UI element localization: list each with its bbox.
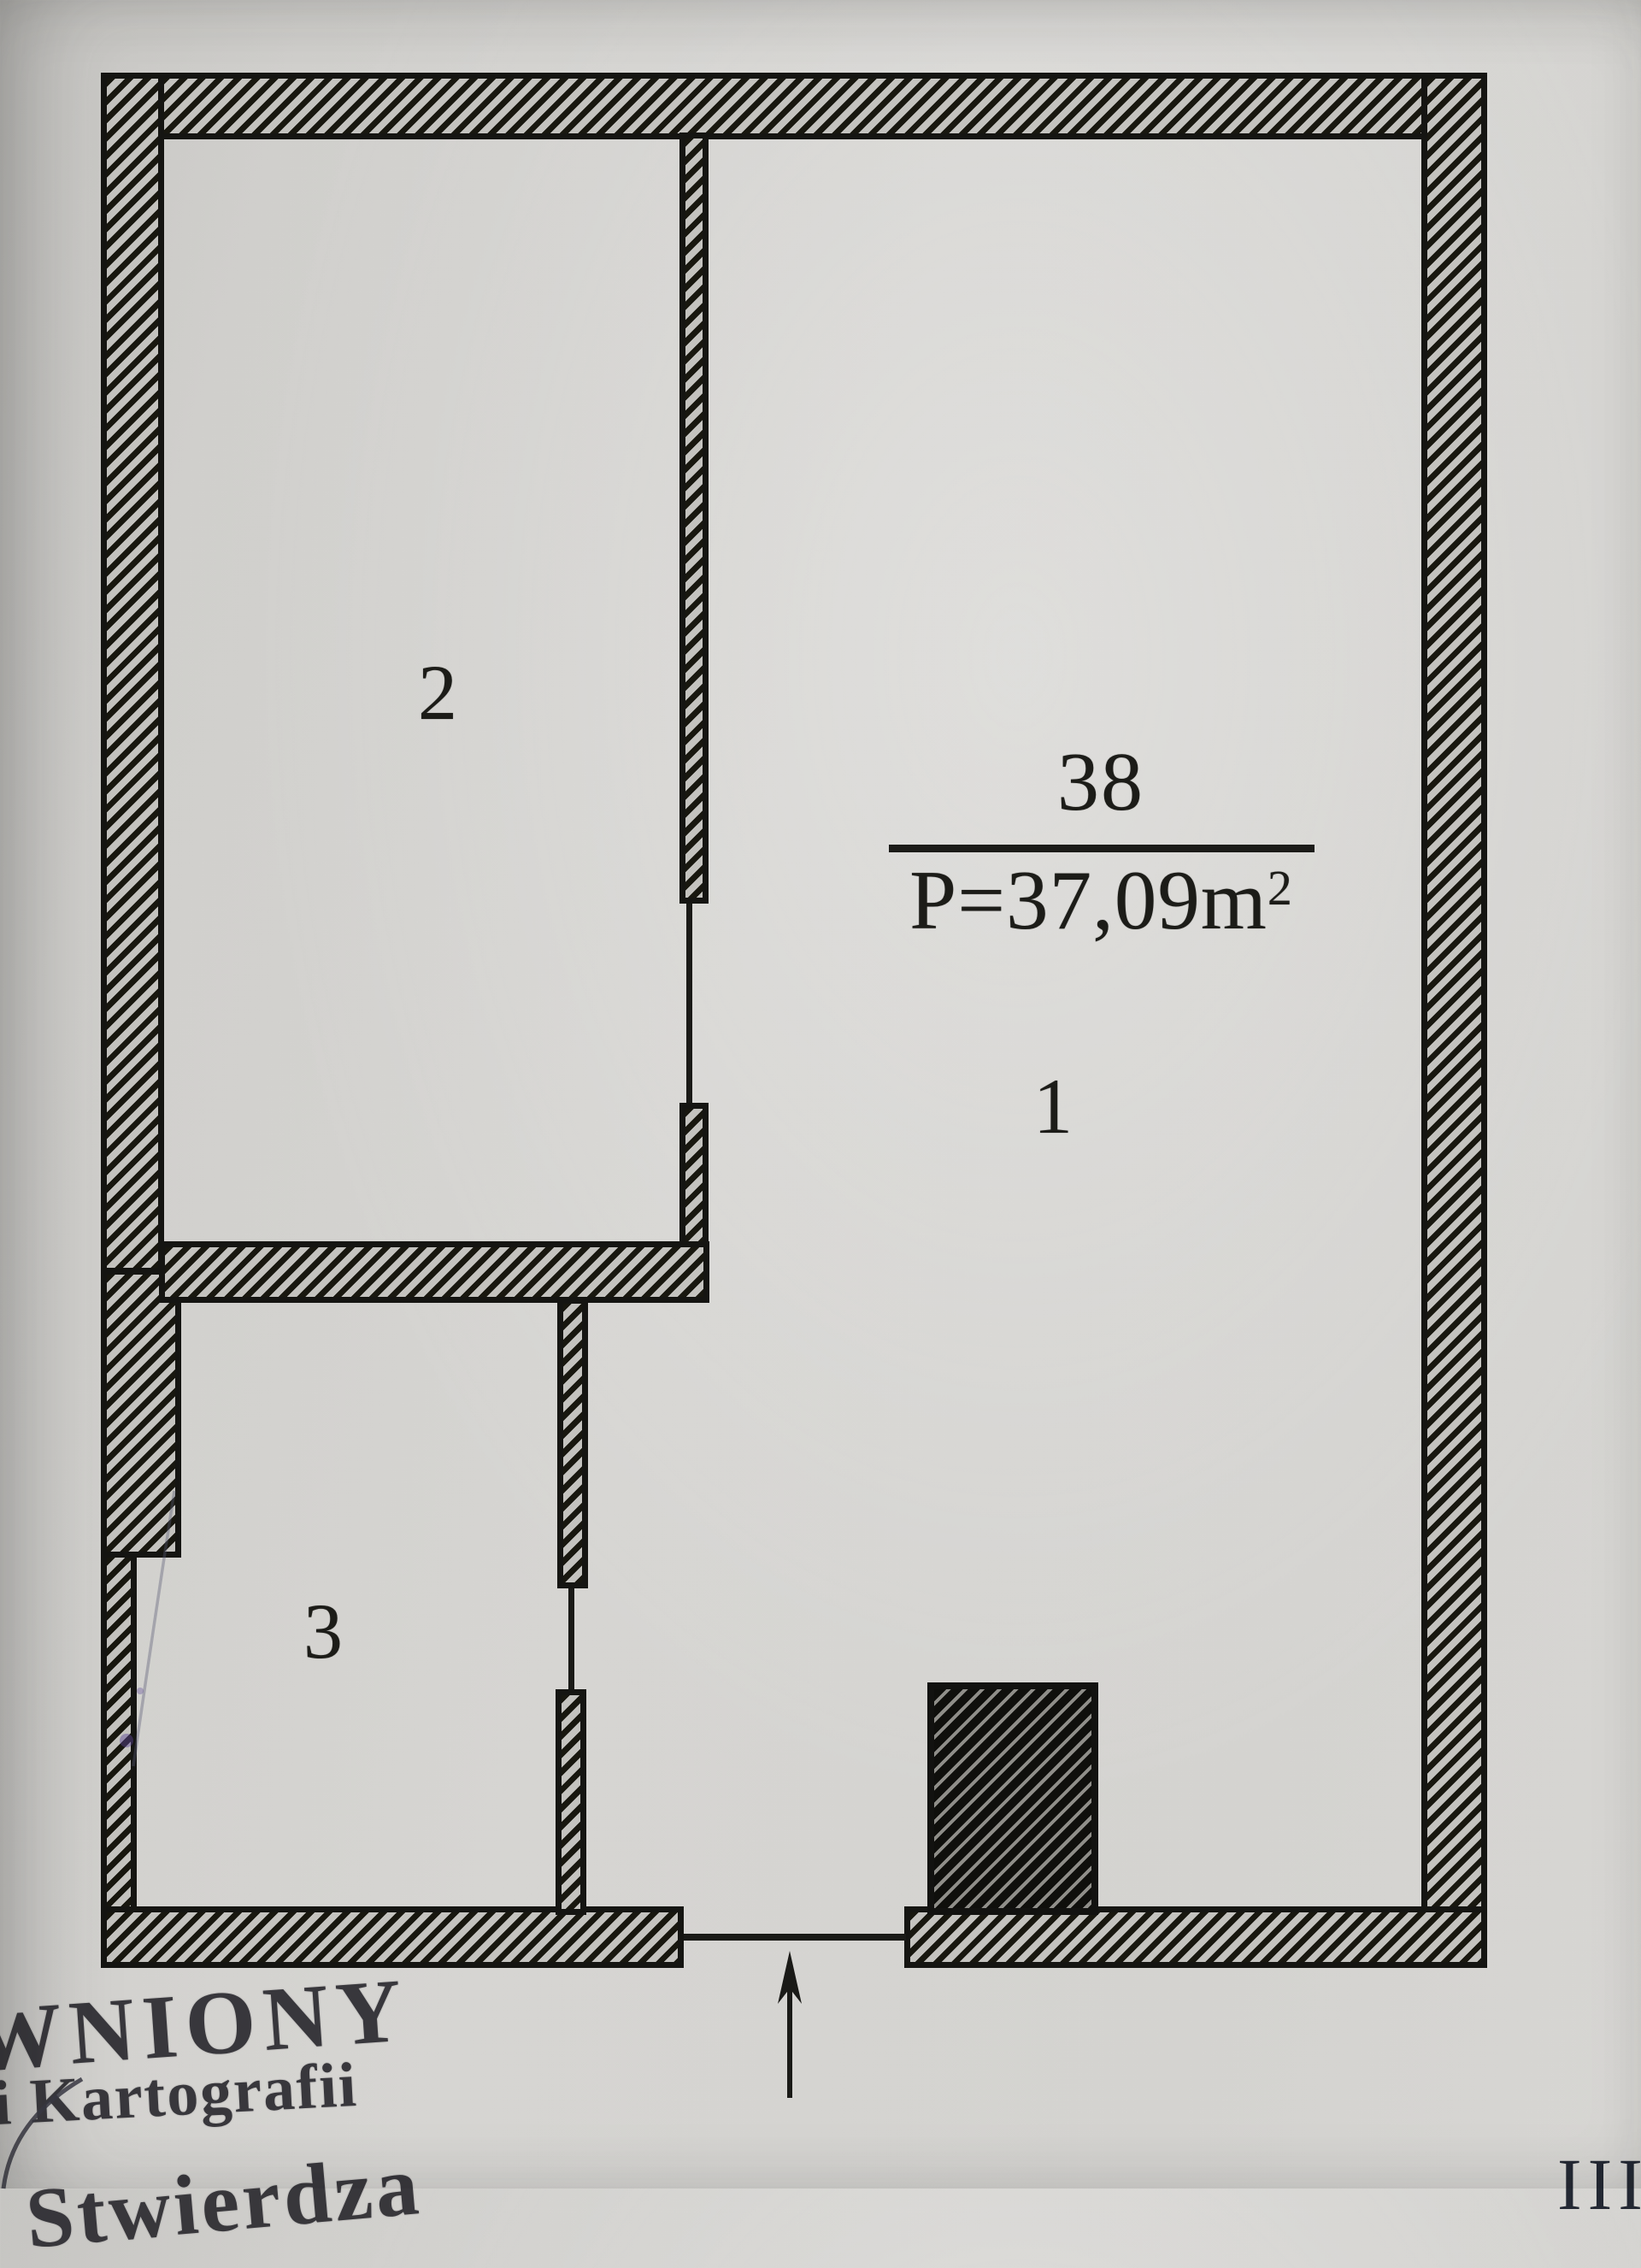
unit-area-label: P=37,09m2 — [882, 858, 1320, 943]
wall-divider-stub — [679, 1103, 709, 1248]
door-opening-room3 — [568, 1588, 574, 1691]
floor-plan: 38 P=37,09m2 1 2 3 WNIONY i Kartografii … — [0, 0, 1641, 2188]
wall-top — [101, 73, 1487, 139]
room-label-2: 2 — [386, 653, 489, 732]
wall-room3-stub-lower — [556, 1689, 586, 1915]
room-label-1: 1 — [1002, 1067, 1104, 1146]
unit-fraction-line — [889, 845, 1315, 852]
stamp-signature-flourish — [0, 2052, 120, 2188]
wall-left-upper — [101, 73, 164, 1274]
wall-bottom-right — [904, 1906, 1487, 1968]
unit-area-superscript: 2 — [1268, 860, 1292, 916]
wall-divider-room2-room1 — [679, 133, 709, 904]
entrance-arrow-icon — [764, 1951, 815, 2105]
wall-right — [1421, 73, 1487, 1968]
shaft-block — [927, 1682, 1098, 1915]
wall-room2-room3 — [159, 1241, 709, 1303]
entrance-threshold-line — [684, 1934, 906, 1941]
pen-stroke — [120, 1487, 188, 1778]
unit-number-value: 38 — [882, 740, 1320, 824]
door-opening-room2 — [686, 904, 692, 1105]
unit-number: 38 — [882, 740, 1320, 824]
unit-area-value: P=37,09m — [909, 854, 1268, 947]
wall-room3-stub-upper — [557, 1298, 588, 1588]
room-label-3: 3 — [272, 1592, 374, 1670]
storey-marker: III — [1557, 2147, 1641, 2221]
